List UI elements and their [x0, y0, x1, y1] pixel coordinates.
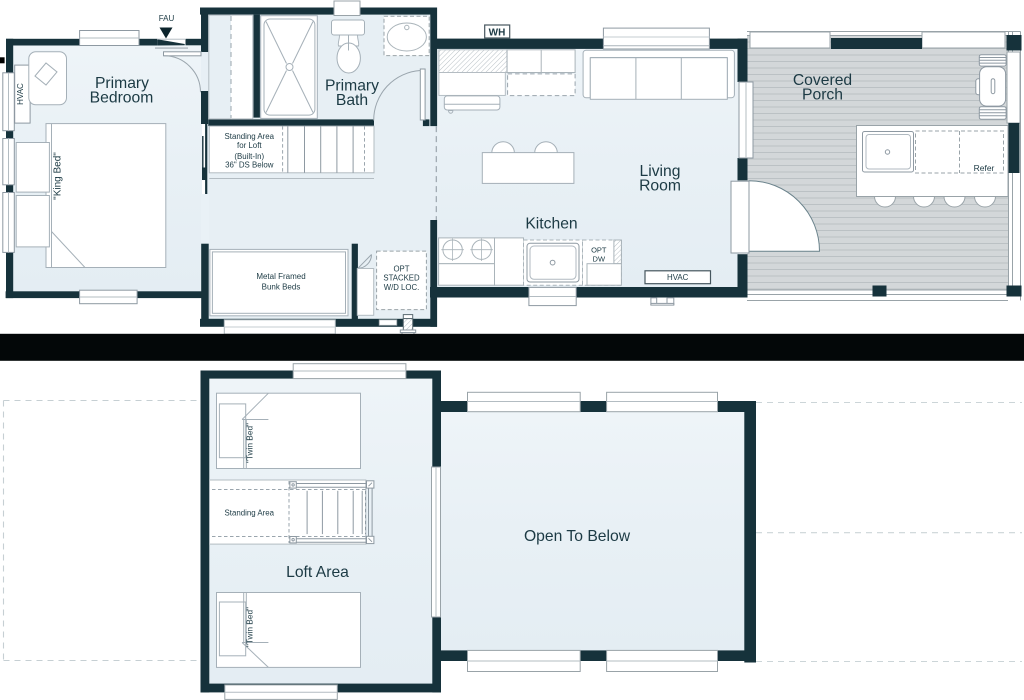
svg-text:Metal Framed: Metal Framed: [256, 272, 305, 281]
svg-text:Kitchen: Kitchen: [525, 216, 577, 233]
svg-text:36" DS Below: 36" DS Below: [225, 160, 274, 169]
svg-text:for Loft: for Loft: [237, 141, 262, 150]
svg-text:HVAC: HVAC: [667, 273, 689, 282]
svg-text:Bath: Bath: [336, 92, 368, 109]
svg-text:Standing Area: Standing Area: [225, 509, 275, 518]
svg-text:"Twin Bed": "Twin Bed": [245, 423, 255, 463]
svg-text:Room: Room: [639, 178, 681, 195]
svg-text:HVAC: HVAC: [16, 83, 25, 105]
svg-text:WH: WH: [489, 28, 506, 39]
svg-text:STACKED: STACKED: [383, 274, 420, 283]
svg-text:OPT: OPT: [591, 246, 607, 255]
svg-text:FAU: FAU: [159, 14, 175, 23]
svg-text:OPT: OPT: [393, 265, 409, 274]
svg-text:Loft Area: Loft Area: [286, 564, 349, 581]
svg-text:Refer: Refer: [974, 163, 995, 173]
svg-text:Bedroom: Bedroom: [90, 90, 154, 107]
svg-text:Standing Area: Standing Area: [225, 132, 275, 141]
svg-text:"King Bed": "King Bed": [53, 152, 64, 200]
svg-text:"Twin Bed": "Twin Bed": [245, 607, 255, 647]
svg-text:DW: DW: [593, 255, 606, 264]
svg-text:Open To Below: Open To Below: [524, 528, 631, 545]
svg-text:Porch: Porch: [802, 87, 843, 104]
svg-text:Bunk Beds: Bunk Beds: [262, 283, 301, 292]
svg-text:W/D LOC.: W/D LOC.: [384, 283, 420, 292]
